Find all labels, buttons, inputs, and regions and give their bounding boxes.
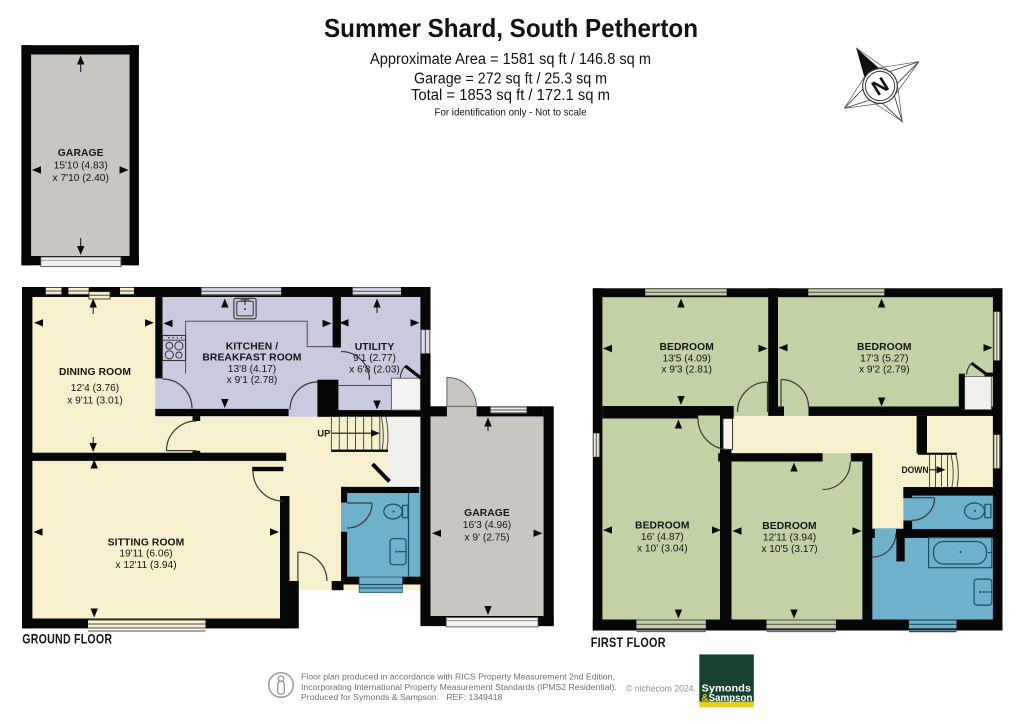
svg-text:BEDROOM: BEDROOM bbox=[659, 342, 713, 353]
svg-text:15'10 (4.83): 15'10 (4.83) bbox=[54, 161, 108, 172]
svg-text:x 9' (2.75): x 9' (2.75) bbox=[465, 532, 510, 543]
svg-text:17'3 (5.27): 17'3 (5.27) bbox=[860, 353, 908, 364]
svg-text:12'4 (3.76): 12'4 (3.76) bbox=[71, 383, 119, 394]
svg-text:x 10' (3.04): x 10' (3.04) bbox=[637, 544, 688, 555]
svg-text:13'5 (4.09): 13'5 (4.09) bbox=[663, 353, 711, 364]
svg-text:Garage = 272 sq ft / 25.3 sq m: Garage = 272 sq ft / 25.3 sq m bbox=[414, 71, 607, 88]
svg-text:Floor plan produced in accorda: Floor plan produced in accordance with R… bbox=[301, 672, 615, 682]
svg-text:x 9'3 (2.81): x 9'3 (2.81) bbox=[661, 365, 712, 376]
svg-text:DOWN: DOWN bbox=[902, 465, 929, 476]
svg-text:9'1 (2.77): 9'1 (2.77) bbox=[353, 353, 396, 364]
svg-text:x 9'1 (2.78): x 9'1 (2.78) bbox=[227, 375, 278, 386]
svg-text:19'11 (6.06): 19'11 (6.06) bbox=[119, 549, 172, 560]
svg-text:FIRST FLOOR: FIRST FLOOR bbox=[591, 635, 666, 650]
svg-text:BREAKFAST ROOM: BREAKFAST ROOM bbox=[202, 353, 301, 364]
svg-text:x 10'5 (3.17): x 10'5 (3.17) bbox=[761, 544, 817, 555]
svg-text:BEDROOM: BEDROOM bbox=[635, 521, 689, 532]
svg-text:13'8 (4.17): 13'8 (4.17) bbox=[228, 364, 276, 375]
svg-text:Summer Shard, South Petherton: Summer Shard, South Petherton bbox=[324, 13, 698, 43]
svg-text:BEDROOM: BEDROOM bbox=[762, 521, 816, 532]
svg-text:KITCHEN /: KITCHEN / bbox=[226, 342, 278, 353]
svg-text:&Sampson: &Sampson bbox=[702, 693, 753, 704]
svg-text:Approximate Area = 1581 sq ft: Approximate Area = 1581 sq ft / 146.8 sq… bbox=[370, 51, 651, 68]
svg-text:UP: UP bbox=[317, 429, 331, 440]
svg-text:Incorporating International Pr: Incorporating International Property Mea… bbox=[301, 682, 617, 692]
svg-text:DINING ROOM: DINING ROOM bbox=[59, 367, 131, 378]
svg-text:GARAGE: GARAGE bbox=[464, 508, 510, 519]
svg-text:GROUND FLOOR: GROUND FLOOR bbox=[22, 632, 112, 647]
svg-text:x 12'11 (3.94): x 12'11 (3.94) bbox=[115, 560, 176, 571]
svg-text:BEDROOM: BEDROOM bbox=[857, 342, 911, 353]
svg-text:Total = 1853 sq ft / 172.1 sq: Total = 1853 sq ft / 172.1 sq m bbox=[411, 87, 610, 104]
svg-text:16' (4.87): 16' (4.87) bbox=[641, 532, 684, 543]
svg-text:SITTING ROOM: SITTING ROOM bbox=[108, 537, 185, 548]
svg-text:UTILITY: UTILITY bbox=[355, 342, 395, 353]
svg-text:For identification only - Not: For identification only - Not to scale bbox=[435, 108, 587, 119]
svg-text:Produced for Symonds & Sampson: Produced for Symonds & Sampson. REF: 134… bbox=[301, 692, 503, 702]
svg-text:GARAGE: GARAGE bbox=[58, 148, 104, 159]
svg-text:16'3 (4.96): 16'3 (4.96) bbox=[463, 520, 511, 531]
svg-text:x 9'2 (2.79): x 9'2 (2.79) bbox=[859, 365, 910, 376]
svg-text:© nichecom 2024.: © nichecom 2024. bbox=[626, 684, 696, 694]
svg-text:x 9'11 (3.01): x 9'11 (3.01) bbox=[67, 396, 123, 407]
svg-text:x 6'8 (2.03): x 6'8 (2.03) bbox=[349, 365, 400, 376]
svg-text:x 7'10 (2.40): x 7'10 (2.40) bbox=[53, 173, 109, 184]
svg-text:12'11 (3.94): 12'11 (3.94) bbox=[763, 533, 816, 544]
